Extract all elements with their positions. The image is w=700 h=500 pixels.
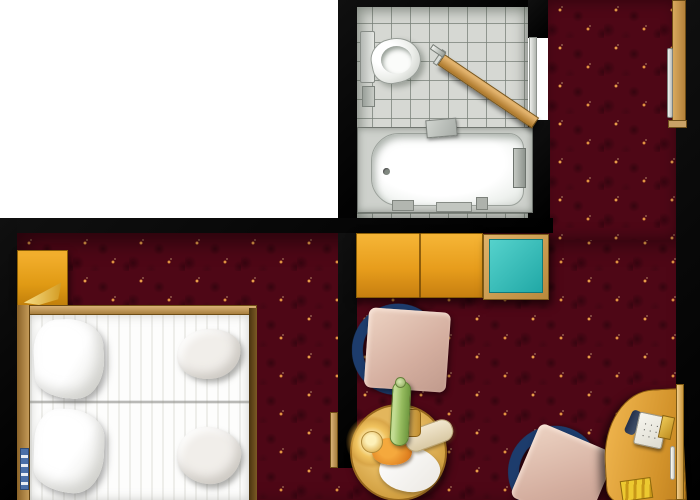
wall-bathroom-top [338,0,548,7]
toilet-brush [362,86,375,107]
candle [361,431,383,453]
wall-left [0,218,17,500]
pillow [32,317,106,401]
toiletry-item [436,202,472,212]
green-bottle [389,381,411,447]
floorplan-canvas [0,0,700,500]
toilet-seat [381,46,412,74]
entry-door [672,0,686,127]
pen [670,446,675,480]
entry-door-frame [668,120,687,128]
magazine [20,448,29,490]
armchair-cushion [510,422,617,500]
armchair-cushion [364,307,451,393]
bathtub-faucet [513,148,526,188]
hotel-folder [620,477,654,500]
toiletry-item [476,197,488,210]
entry-door-handle [667,48,673,118]
bed-frame-right [249,308,257,500]
bathtub-drain [383,168,390,175]
wall-bedroom-top [0,218,553,233]
desk-side-panel [676,384,684,500]
towel-on-tub [425,118,457,139]
wardrobe-door-divider [419,233,421,298]
doorjamb-wood [330,412,338,468]
bed-frame-top [20,305,257,315]
wall-bathroom-right-upper [528,0,548,38]
bathtub-basin [371,133,524,206]
luggage-rack-top [489,239,543,293]
wall-bathroom-left [338,0,357,233]
carpet-hallway [548,0,684,240]
bottle-cap [395,377,406,388]
toiletry-item [392,200,414,211]
bathroom-door-threshold [529,37,537,121]
pillow [33,408,106,494]
mattress-seam [30,400,249,404]
